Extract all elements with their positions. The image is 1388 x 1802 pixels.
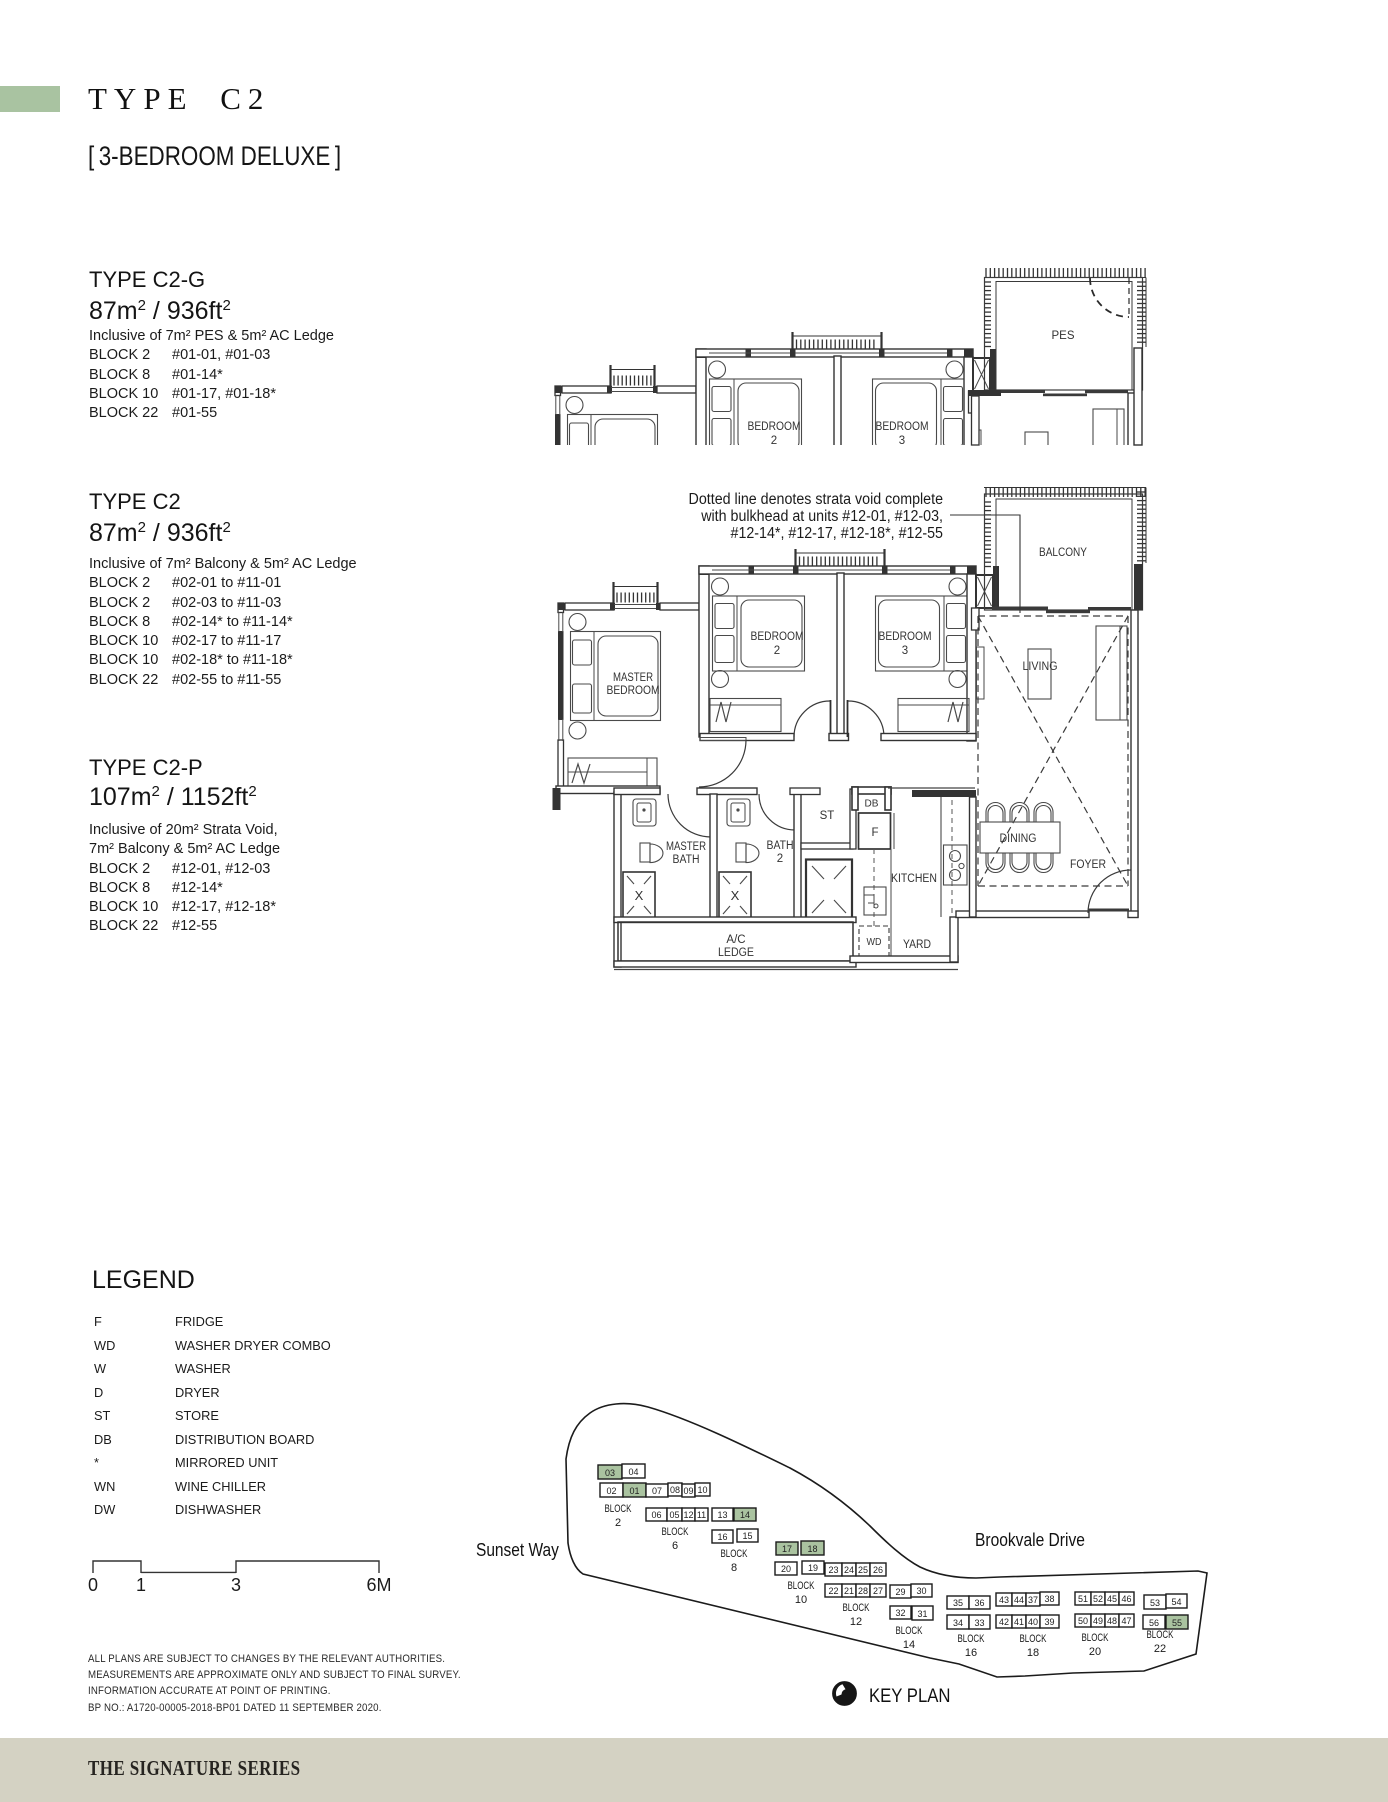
svg-text:BLOCK: BLOCK <box>1020 1633 1047 1645</box>
svg-text:BLOCK: BLOCK <box>843 1602 870 1614</box>
svg-text:12: 12 <box>850 1616 862 1628</box>
svg-text:BLOCK: BLOCK <box>788 1580 815 1592</box>
svg-text:05: 05 <box>669 1510 679 1520</box>
svg-text:55: 55 <box>1172 1618 1182 1628</box>
svg-text:20: 20 <box>781 1564 791 1574</box>
svg-text:53: 53 <box>1150 1598 1160 1608</box>
svg-text:44: 44 <box>1014 1595 1024 1605</box>
svg-text:BLOCK: BLOCK <box>1147 1629 1174 1641</box>
svg-text:08: 08 <box>670 1485 680 1495</box>
svg-text:24: 24 <box>844 1565 854 1575</box>
svg-text:33: 33 <box>974 1618 984 1628</box>
svg-text:46: 46 <box>1121 1594 1131 1604</box>
svg-text:18: 18 <box>807 1544 817 1554</box>
svg-text:10: 10 <box>795 1594 807 1606</box>
svg-text:12: 12 <box>683 1510 693 1520</box>
svg-text:10: 10 <box>697 1485 707 1495</box>
svg-text:34: 34 <box>953 1618 963 1628</box>
svg-text:45: 45 <box>1107 1594 1117 1604</box>
svg-text:23: 23 <box>828 1565 838 1575</box>
svg-text:48: 48 <box>1107 1616 1117 1626</box>
svg-text:32: 32 <box>895 1608 905 1618</box>
svg-text:37: 37 <box>1028 1595 1038 1605</box>
svg-text:20: 20 <box>1089 1646 1101 1658</box>
svg-text:06: 06 <box>651 1510 661 1520</box>
svg-text:BLOCK: BLOCK <box>721 1548 748 1560</box>
svg-text:11: 11 <box>697 1510 706 1520</box>
svg-text:16: 16 <box>717 1532 727 1542</box>
svg-text:BLOCK: BLOCK <box>605 1503 632 1515</box>
svg-text:22: 22 <box>1154 1643 1166 1655</box>
svg-text:41: 41 <box>1014 1617 1024 1627</box>
svg-text:49: 49 <box>1093 1616 1103 1626</box>
svg-text:27: 27 <box>873 1586 883 1596</box>
svg-text:30: 30 <box>916 1586 926 1596</box>
svg-text:38: 38 <box>1044 1594 1054 1604</box>
svg-text:03: 03 <box>605 1468 615 1478</box>
svg-text:14: 14 <box>740 1510 750 1520</box>
svg-text:09: 09 <box>683 1486 693 1496</box>
svg-text:19: 19 <box>808 1563 818 1573</box>
svg-text:31: 31 <box>917 1609 927 1619</box>
svg-text:13: 13 <box>717 1510 727 1520</box>
svg-text:54: 54 <box>1171 1597 1181 1607</box>
svg-text:2: 2 <box>615 1517 621 1529</box>
svg-text:BLOCK: BLOCK <box>1082 1632 1109 1644</box>
svg-text:50: 50 <box>1078 1616 1088 1626</box>
svg-text:22: 22 <box>828 1586 838 1596</box>
svg-text:07: 07 <box>652 1486 662 1496</box>
svg-text:04: 04 <box>628 1467 638 1477</box>
svg-text:36: 36 <box>974 1598 984 1608</box>
svg-text:BLOCK: BLOCK <box>958 1633 985 1645</box>
svg-text:8: 8 <box>731 1562 737 1574</box>
svg-text:47: 47 <box>1121 1616 1131 1626</box>
svg-text:29: 29 <box>895 1587 905 1597</box>
svg-text:42: 42 <box>999 1617 1009 1627</box>
svg-text:17: 17 <box>782 1544 792 1554</box>
svg-text:25: 25 <box>858 1565 868 1575</box>
svg-text:15: 15 <box>742 1531 752 1541</box>
svg-text:39: 39 <box>1044 1617 1054 1627</box>
svg-text:18: 18 <box>1027 1647 1039 1659</box>
svg-text:6: 6 <box>672 1540 678 1552</box>
svg-text:26: 26 <box>873 1565 883 1575</box>
svg-text:52: 52 <box>1093 1594 1103 1604</box>
svg-text:40: 40 <box>1028 1617 1038 1627</box>
svg-text:14: 14 <box>903 1639 915 1651</box>
svg-text:56: 56 <box>1149 1618 1159 1628</box>
svg-text:35: 35 <box>953 1598 963 1608</box>
svg-text:28: 28 <box>858 1586 868 1596</box>
svg-text:BLOCK: BLOCK <box>662 1526 689 1538</box>
svg-text:51: 51 <box>1078 1594 1088 1604</box>
svg-text:21: 21 <box>844 1586 854 1596</box>
svg-text:02: 02 <box>606 1486 616 1496</box>
svg-text:43: 43 <box>999 1595 1009 1605</box>
svg-text:BLOCK: BLOCK <box>896 1625 923 1637</box>
svg-text:16: 16 <box>965 1647 977 1659</box>
svg-text:01: 01 <box>629 1486 639 1496</box>
